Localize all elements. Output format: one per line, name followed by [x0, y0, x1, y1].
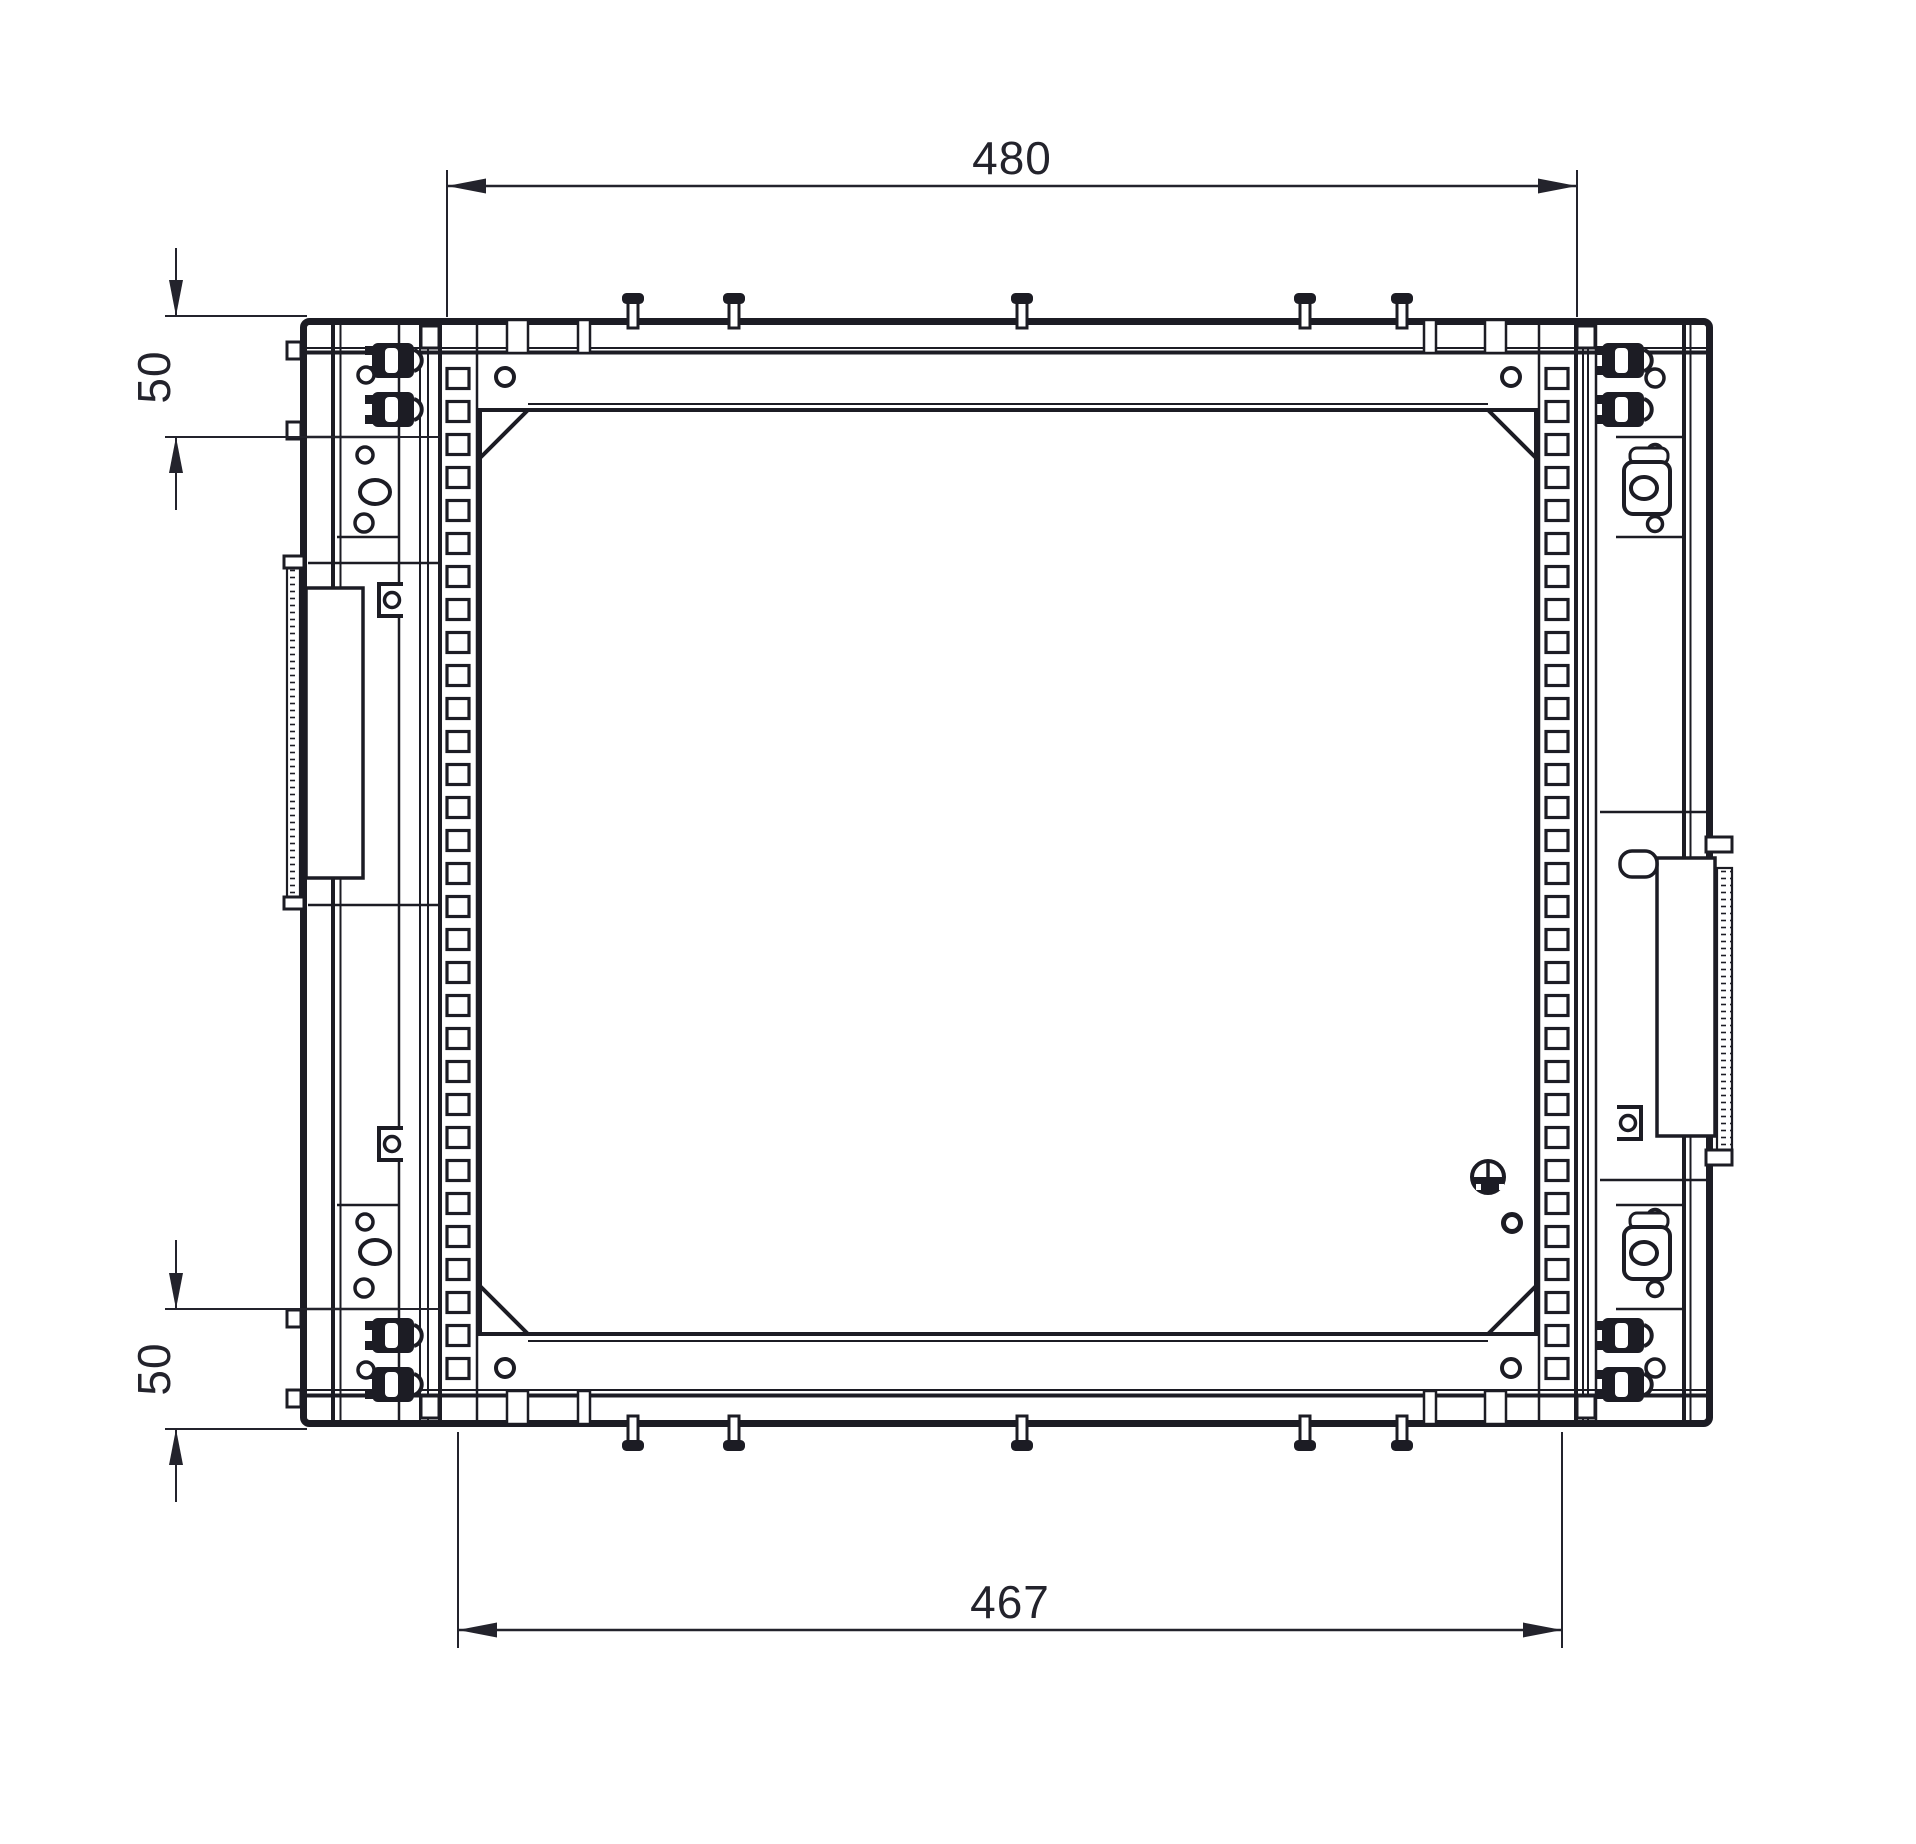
rail-square-holes-right [1544, 362, 1570, 1391]
corner-bolt [421, 326, 439, 348]
edge-tab [578, 1391, 590, 1424]
rail-bracket-icon [379, 1128, 403, 1160]
edge-tab [578, 320, 590, 353]
corner-bolt [1577, 326, 1595, 348]
cage-nut-clip-icon [365, 1318, 422, 1353]
clip-pivot-hole [1646, 1359, 1664, 1377]
cage-nut-clip-icon [365, 392, 422, 427]
dim-arrow-left [458, 1623, 497, 1638]
dim-arrow-right [1538, 179, 1577, 194]
hinge-knuckle-tab [287, 342, 301, 359]
drawing-sheet: 480 467 50 50 [0, 0, 1916, 1844]
dim-arrow-up [169, 1429, 183, 1465]
cage-nut-clip-icon [1595, 1318, 1652, 1353]
rail-square-holes-left [445, 362, 471, 1391]
hinge-pin-cap [284, 897, 304, 909]
dim-label-top-offset: 50 [128, 350, 180, 403]
dim-arrow-left [447, 179, 486, 194]
edge-tab [1424, 320, 1436, 353]
edge-tab [507, 1391, 528, 1424]
cage-nut-clip-icon [1595, 392, 1652, 427]
hinge-pin-knurl [287, 564, 300, 904]
edge-tab [1424, 1391, 1436, 1424]
corner-bolt [421, 1396, 439, 1418]
ground-screw-notch [1499, 1184, 1504, 1190]
handle-plate [1657, 858, 1715, 1136]
rack-frame-technical-drawing: 480 467 50 50 [0, 0, 1916, 1844]
frame [304, 320, 1710, 1424]
hinge-knuckle-tab [287, 1390, 301, 1407]
rail-bracket-icon [1617, 1107, 1641, 1139]
handle-grip-knurl [1717, 868, 1732, 1154]
clip-pivot-hole [1646, 369, 1664, 387]
dim-arrow-down [169, 280, 183, 316]
ground-screw-notch [1476, 1184, 1481, 1190]
edge-tab [1485, 320, 1506, 353]
handle-bolt [1706, 837, 1732, 852]
clip-pivot-hole [358, 367, 374, 383]
dim-label-inner-width: 467 [970, 1576, 1050, 1628]
hinge-pin-cap [284, 556, 304, 568]
dimension-inner-width: 467 [458, 1432, 1562, 1648]
rail-bracket-icon [379, 584, 403, 616]
cage-nut-clip-icon [1595, 343, 1652, 378]
handle-bolt [1706, 1150, 1732, 1165]
dim-label-bottom-offset: 50 [128, 1342, 180, 1395]
clip-pivot-hole [358, 1362, 374, 1378]
dim-arrow-right [1523, 1623, 1562, 1638]
hinge-leaf-plate [306, 588, 363, 878]
dim-arrow-down [169, 1273, 183, 1309]
edge-tab [507, 320, 528, 353]
cage-nut-clip-icon [1595, 1367, 1652, 1402]
dim-arrow-up [169, 437, 183, 473]
dimension-overall-width: 480 [447, 132, 1577, 317]
edge-tab [1485, 1391, 1506, 1424]
corner-bolt [1577, 1396, 1595, 1418]
handle-end-tab [1620, 851, 1657, 877]
dim-label-overall-width: 480 [972, 132, 1052, 184]
frame-outer-edge [304, 322, 1710, 1424]
hinge-knuckle-tab [287, 1310, 301, 1327]
